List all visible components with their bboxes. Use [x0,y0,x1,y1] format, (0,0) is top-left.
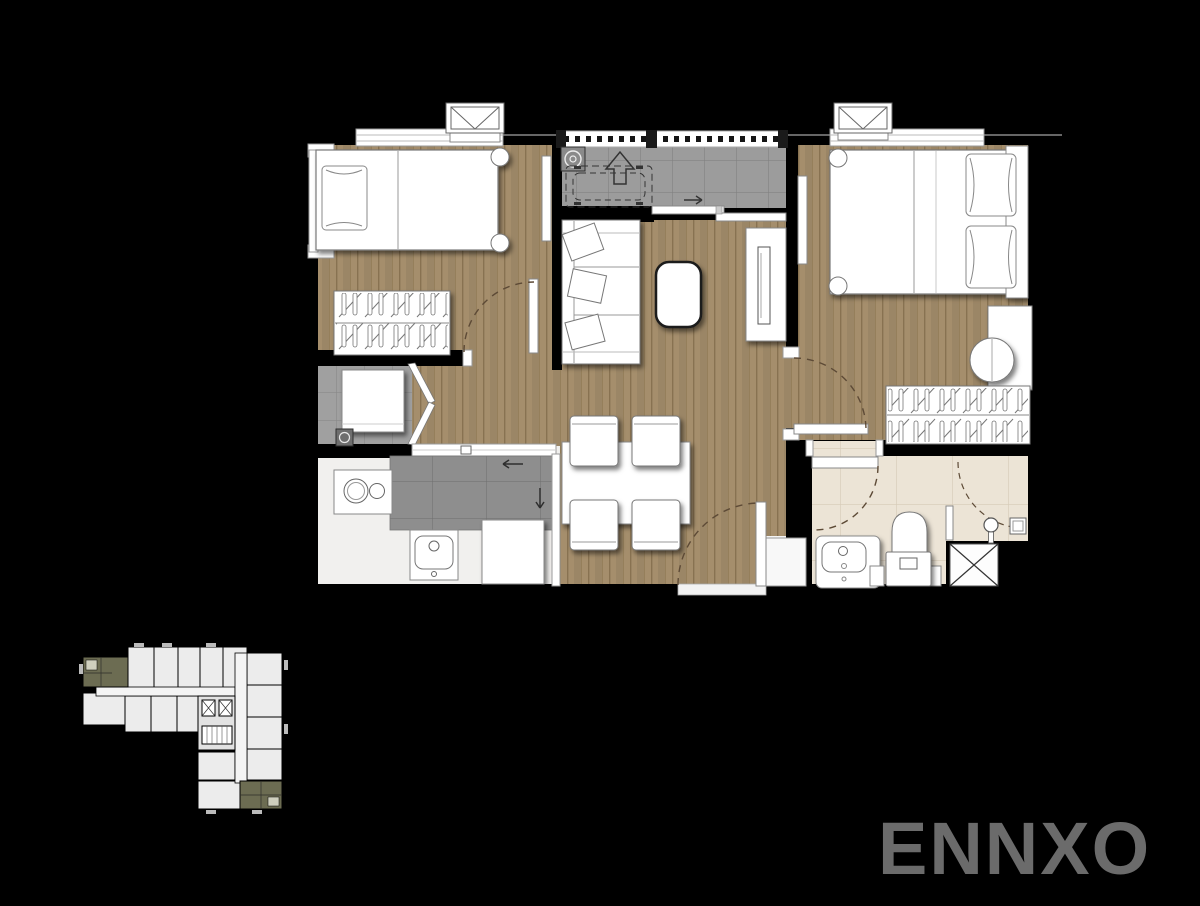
key-plan-corridor [96,687,235,696]
bath-accessory [870,566,884,586]
door-jamb [783,347,799,358]
dim-mark [574,202,581,205]
washer-drain-icon [561,147,585,171]
entry-cabinet [766,538,806,586]
stool-icon [970,338,1014,382]
wall-living-bedroom2 [786,143,798,358]
ac-condenser-icon [446,103,504,142]
dim-mark [636,166,643,169]
key-plan [79,643,288,814]
bathroom-doorway [813,441,876,456]
sofa-icon [562,220,640,364]
wall-bottom [306,584,1046,602]
balcony-railing [556,130,788,148]
wardrobe-icon [886,386,1030,444]
countertop [390,456,553,530]
floor-drain-icon [1010,518,1026,534]
door-jamb [876,440,883,456]
shaft-x-icon [950,544,998,586]
balcony-floor [562,145,786,208]
sink-icon [410,530,458,580]
dim-mark [636,202,643,205]
floor-plan-canvas: ENNXO [0,0,1200,906]
coffee-table-icon [656,262,701,327]
door-leaf [812,457,878,468]
tv-panel-icon [798,176,807,264]
door-jamb [463,350,472,366]
wardrobe-icon [334,291,450,355]
counter-back-panel [412,444,556,456]
door-leaf [756,502,766,586]
key-plan-corridor [235,653,247,783]
single-bed-icon [316,148,509,252]
tv-panel-icon [542,156,551,241]
counter-end-panel [552,454,560,586]
dim-mark [574,166,581,169]
washing-machine-icon [342,370,404,432]
shower-partition [946,506,953,540]
floor-plan: ENNXO [0,0,1200,906]
door-leaf [794,424,868,434]
door-jamb [806,440,813,456]
watermark-text: ENNXO [878,807,1151,890]
key-plan-highlighted-unit [240,781,282,809]
key-plan-highlighted-unit [83,657,128,687]
ac-condenser-icon [834,103,892,140]
door-leaf [529,279,538,353]
key-plan-core [198,696,235,750]
balcony-sliding-door [652,206,786,221]
stove-icon [334,470,392,514]
double-bed-icon [829,146,1028,298]
wall-entry-bathroom [786,442,812,540]
entrance-threshold [678,584,766,595]
floor-drain-icon [336,429,353,446]
wall-bedroom1-living [552,143,562,370]
refrigerator-icon [482,520,544,584]
door-handle [461,446,471,454]
tv-console-icon [746,228,786,341]
toilet-icon [886,512,931,586]
pillow-icon [322,166,367,230]
